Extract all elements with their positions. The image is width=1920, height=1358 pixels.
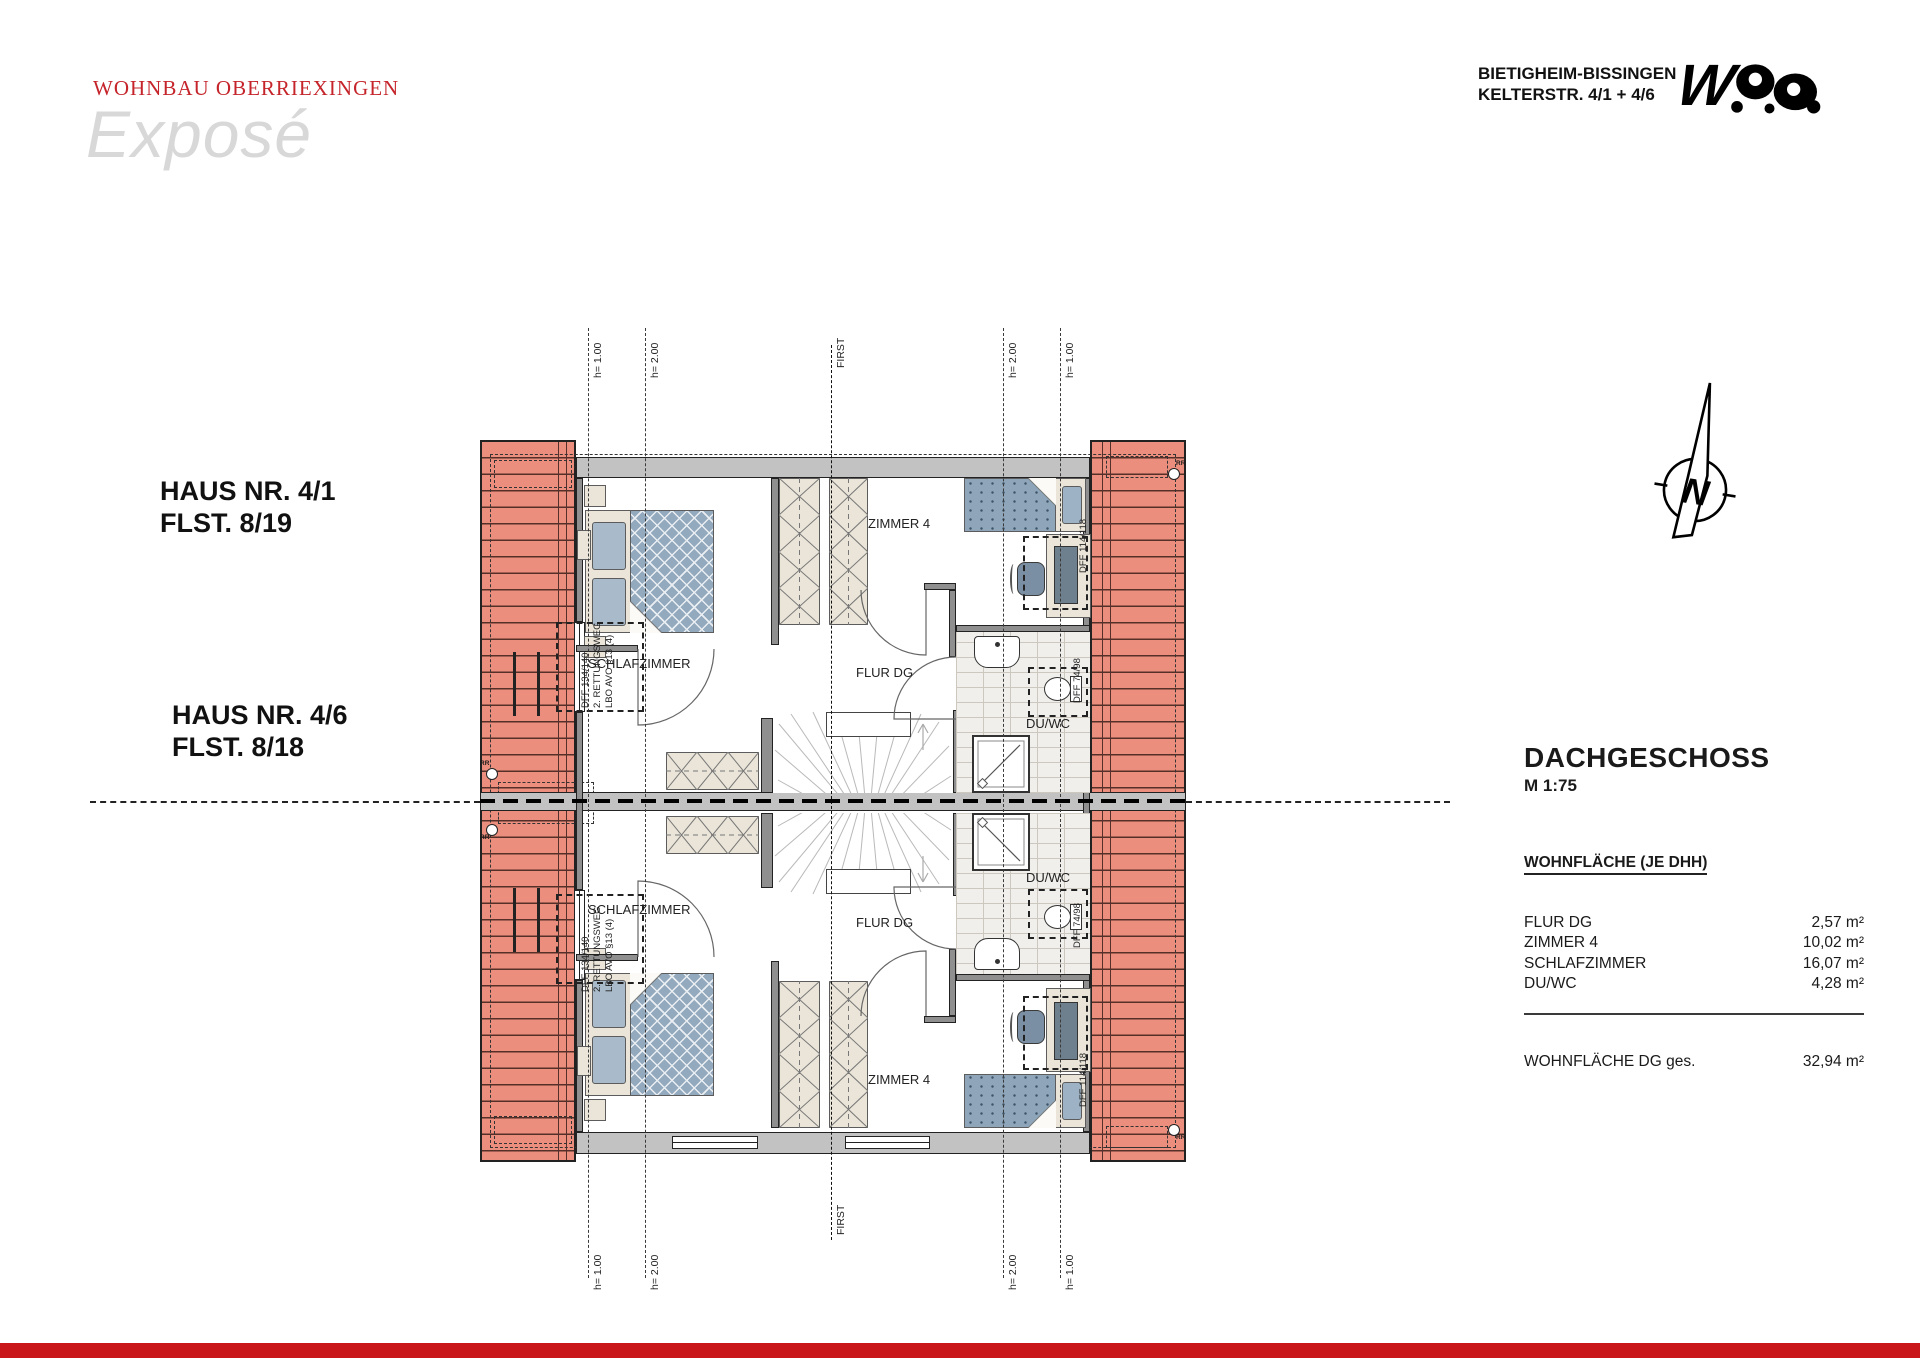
- gutter-dashed-box: [494, 460, 572, 488]
- height-label-bot-3: h= 2.00: [1007, 1255, 1019, 1290]
- ridge-label-bottom: FIRST: [835, 1205, 847, 1235]
- dff-desk-label-upper: DFF 114/118: [1078, 519, 1090, 573]
- expose-watermark: Exposé: [86, 96, 312, 172]
- unit-haus-4-6: [576, 813, 1090, 1128]
- project-address: BIETIGHEIM-BISSINGEN KELTERSTR. 4/1 + 4/…: [1478, 63, 1676, 106]
- info-panel: DACHGESCHOSS M 1:75 WOHNFLÄCHE (JE DHH) …: [1524, 742, 1864, 1071]
- compass-letter: N: [1680, 469, 1713, 514]
- unit-interior: [576, 813, 1090, 1128]
- area-row-label: SCHLAFZIMMER: [1524, 954, 1646, 974]
- height-label-top-1: h= 1.00: [592, 343, 604, 378]
- rescue-l3: LBO AVO §13 (4): [604, 622, 616, 708]
- room-label-flur-lower: FLUR DG: [856, 915, 913, 930]
- rainpipe-marker: [486, 768, 498, 780]
- height-label-top-3: h= 2.00: [1007, 343, 1019, 378]
- area-row: FLUR DG 2,57 m²: [1524, 913, 1864, 933]
- symmetry-axis-right: [1186, 801, 1450, 803]
- floor-plan: RR RR RR RR h= 1.00 h= 2.00 h= 2.00 h= 1…: [480, 440, 1186, 1162]
- house-1-name: HAUS NR. 4/1: [160, 476, 336, 508]
- plan-scale: M 1:75: [1524, 776, 1864, 796]
- footer-red-bar: [0, 1343, 1920, 1358]
- window-bottom-1: [672, 1136, 758, 1149]
- logo-graphic: W: [1672, 55, 1822, 117]
- area-row-label: DU/WC: [1524, 974, 1577, 994]
- house-label-4-1: HAUS NR. 4/1 FLST. 8/19: [160, 476, 336, 540]
- rescue-l2: 2. RETTUNGSWEG: [592, 906, 604, 992]
- area-row: DU/WC 4,28 m²: [1524, 974, 1864, 994]
- table-divider: [1524, 1013, 1864, 1015]
- rainpipe-marker: [1168, 468, 1180, 480]
- area-table-heading: WOHNFLÄCHE (JE DHH): [1524, 854, 1707, 875]
- height-label-bot-1: h= 1.00: [592, 1255, 604, 1290]
- window-bottom-2: [845, 1136, 930, 1149]
- rainpipe-label: RR: [480, 834, 489, 841]
- roof-ladder-bar: [537, 652, 540, 716]
- height-label-top-4: h= 1.00: [1064, 343, 1076, 378]
- rescue-l1: DFF 134/140: [580, 906, 592, 992]
- dff-wc-label-upper: DFF 74/98: [1072, 658, 1084, 703]
- unit-haus-4-1: [576, 478, 1090, 793]
- dff-desk-label-lower: DFF 114/118: [1078, 1053, 1090, 1107]
- roof-ladder-bar: [513, 652, 516, 716]
- house-label-4-6: HAUS NR. 4/6 FLST. 8/18: [172, 700, 348, 764]
- area-row-value: 4,28 m²: [1811, 974, 1864, 994]
- company-logo: W: [1672, 55, 1822, 122]
- height-line-3: [1003, 328, 1004, 1278]
- gutter-dashed-box: [1106, 456, 1168, 478]
- door-arcs: [576, 813, 1090, 1128]
- house-1-flst: FLST. 8/19: [160, 508, 336, 540]
- area-row-value: 16,07 m²: [1803, 954, 1864, 974]
- rescue-l3: LBO AVO §13 (4): [604, 906, 616, 992]
- gutter-dashed-box: [494, 1116, 572, 1144]
- area-total-label: WOHNFLÄCHE DG ges.: [1524, 1053, 1695, 1071]
- north-arrow: N: [1630, 370, 1760, 575]
- rescue-label-lower: DFF 134/140 2. RETTUNGSWEG LBO AVO §13 (…: [580, 906, 616, 992]
- symmetry-axis-left: [90, 801, 480, 803]
- rainpipe-label: RR: [1176, 1134, 1185, 1141]
- house-2-name: HAUS NR. 4/6: [172, 700, 348, 732]
- area-row-value: 2,57 m²: [1811, 913, 1864, 933]
- height-label-bot-2: h= 2.00: [649, 1255, 661, 1290]
- rescue-label-upper: DFF 134/140 2. RETTUNGSWEG LBO AVO §13 (…: [580, 622, 616, 708]
- roof-ladder-bar: [537, 888, 540, 952]
- plan-title: DACHGESCHOSS: [1524, 742, 1864, 774]
- area-row-label: ZIMMER 4: [1524, 933, 1598, 953]
- rainpipe-label: RR: [1176, 460, 1185, 467]
- room-label-duwc-lower: DU/WC: [1026, 870, 1070, 885]
- height-line-1: [588, 328, 589, 1278]
- rescue-l1: DFF 134/140: [580, 622, 592, 708]
- rainpipe-label: RR: [480, 760, 489, 767]
- room-label-flur-upper: FLUR DG: [856, 665, 913, 680]
- address-line-1: BIETIGHEIM-BISSINGEN: [1478, 63, 1676, 84]
- roof-ladder-bar: [513, 888, 516, 952]
- height-line-2: [645, 328, 646, 1278]
- height-label-bot-4: h= 1.00: [1064, 1255, 1076, 1290]
- address-line-2: KELTERSTR. 4/1 + 4/6: [1478, 84, 1676, 105]
- party-wall-axis: [480, 799, 1186, 803]
- area-table: FLUR DG 2,57 m² ZIMMER 4 10,02 m² SCHLAF…: [1524, 913, 1864, 995]
- wall-bottom: [576, 1132, 1090, 1154]
- area-total-row: WOHNFLÄCHE DG ges. 32,94 m²: [1524, 1053, 1864, 1071]
- gutter-dashed-box: [1106, 1126, 1168, 1148]
- north-arrow-graphic: N: [1630, 370, 1760, 570]
- area-row-value: 10,02 m²: [1803, 933, 1864, 953]
- room-label-zimmer4-lower: ZIMMER 4: [868, 1072, 930, 1087]
- ridge-line: [831, 345, 832, 1240]
- area-total-value: 32,94 m²: [1803, 1053, 1864, 1071]
- room-label-duwc-upper: DU/WC: [1026, 716, 1070, 731]
- room-label-zimmer4-upper: ZIMMER 4: [868, 516, 930, 531]
- ridge-label-top: FIRST: [835, 338, 847, 368]
- area-row-label: FLUR DG: [1524, 913, 1592, 933]
- house-2-flst: FLST. 8/18: [172, 732, 348, 764]
- rescue-l2: 2. RETTUNGSWEG: [592, 622, 604, 708]
- height-line-4: [1060, 328, 1061, 1278]
- dff-wc-label-lower: DFF 74/98: [1072, 903, 1084, 948]
- area-row: ZIMMER 4 10,02 m²: [1524, 933, 1864, 953]
- door-arcs: [576, 478, 1090, 793]
- area-row: SCHLAFZIMMER 16,07 m²: [1524, 954, 1864, 974]
- height-label-top-2: h= 2.00: [649, 343, 661, 378]
- wall-top: [576, 457, 1090, 478]
- unit-interior: [576, 478, 1090, 793]
